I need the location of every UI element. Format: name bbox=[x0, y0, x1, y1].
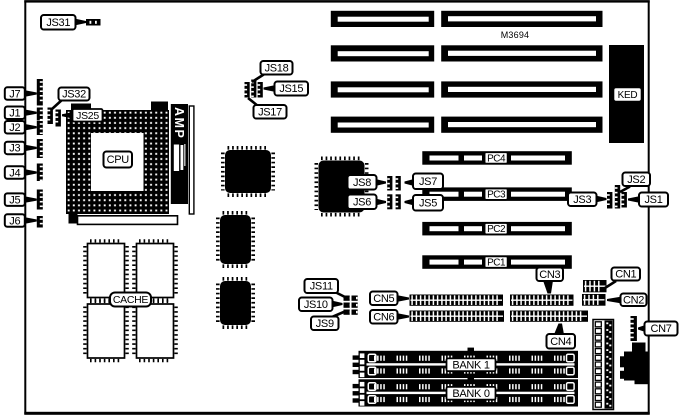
svg-text:J1: J1 bbox=[9, 107, 20, 119]
svg-text:CN7: CN7 bbox=[650, 323, 671, 335]
svg-text:JS18: JS18 bbox=[265, 62, 289, 74]
svg-text:J3: J3 bbox=[9, 143, 20, 155]
svg-text:JS7: JS7 bbox=[419, 176, 437, 188]
svg-text:JS3: JS3 bbox=[573, 194, 591, 206]
svg-text:CN2: CN2 bbox=[623, 294, 644, 306]
svg-text:CN4: CN4 bbox=[550, 336, 571, 348]
svg-text:JS32: JS32 bbox=[62, 89, 86, 101]
svg-text:CN1: CN1 bbox=[615, 269, 636, 281]
svg-text:JS2: JS2 bbox=[627, 174, 645, 186]
svg-text:KED: KED bbox=[618, 90, 638, 101]
svg-text:PC1: PC1 bbox=[487, 257, 506, 268]
svg-text:CPU: CPU bbox=[107, 154, 130, 166]
svg-text:JS8: JS8 bbox=[353, 177, 371, 189]
svg-text:JS1: JS1 bbox=[644, 194, 662, 206]
svg-text:JS11: JS11 bbox=[310, 281, 333, 293]
svg-text:M3694: M3694 bbox=[501, 30, 530, 40]
svg-text:JS6: JS6 bbox=[353, 196, 371, 208]
svg-text:JS5: JS5 bbox=[419, 197, 437, 209]
svg-text:CN3: CN3 bbox=[539, 269, 560, 281]
svg-text:J4: J4 bbox=[9, 167, 20, 179]
svg-text:J7: J7 bbox=[9, 88, 20, 100]
svg-text:JS17: JS17 bbox=[258, 106, 282, 118]
svg-text:J6: J6 bbox=[9, 215, 20, 227]
svg-text:AMP: AMP bbox=[172, 107, 186, 139]
svg-text:JS31: JS31 bbox=[46, 17, 70, 29]
svg-text:JS15: JS15 bbox=[279, 83, 303, 95]
svg-text:JS25: JS25 bbox=[76, 110, 99, 122]
svg-text:PC4: PC4 bbox=[487, 153, 506, 164]
svg-text:JS10: JS10 bbox=[304, 299, 328, 311]
svg-text:BANK 1: BANK 1 bbox=[452, 360, 490, 372]
svg-text:CACHE: CACHE bbox=[113, 294, 149, 306]
svg-text:J5: J5 bbox=[9, 194, 20, 206]
svg-text:BANK 0: BANK 0 bbox=[452, 388, 490, 400]
svg-text:JS9: JS9 bbox=[316, 318, 334, 330]
svg-text:PC2: PC2 bbox=[487, 224, 506, 235]
svg-text:J2: J2 bbox=[9, 122, 20, 134]
svg-text:CN6: CN6 bbox=[373, 311, 394, 323]
svg-text:CN5: CN5 bbox=[373, 293, 394, 305]
svg-text:PC3: PC3 bbox=[487, 190, 506, 201]
